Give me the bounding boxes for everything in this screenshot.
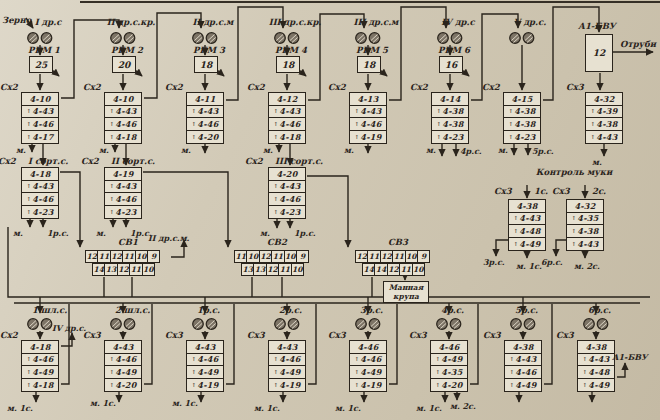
flow-line bbox=[61, 304, 69, 384]
output-label: 6р.с. bbox=[541, 258, 563, 266]
system-label: 3р.с. bbox=[360, 306, 410, 315]
sifter-box: 4-464-494-354-20 bbox=[430, 340, 468, 392]
system-label: II сорт.с. bbox=[111, 157, 155, 166]
system-label: 1 шл.с. bbox=[32, 306, 82, 315]
a1bvu-label: А1-БВУ bbox=[578, 22, 616, 31]
machine-label: РБМ 6 bbox=[434, 46, 474, 55]
output-label: м. 1с. bbox=[254, 404, 280, 412]
sifter-cell: 4-46 bbox=[269, 193, 305, 206]
sifter-cell: 4-46 bbox=[505, 366, 541, 379]
system-label: I сорт.с. bbox=[28, 157, 68, 166]
sifter-cell: 4-49 bbox=[105, 366, 141, 379]
output-label: м. 2с. bbox=[574, 262, 600, 270]
sifter-box: 4-384-434-484-49 bbox=[508, 199, 546, 251]
system-label: II др.с.м bbox=[183, 18, 243, 27]
sifter-cell: 4-15 bbox=[504, 93, 540, 106]
flow-line bbox=[52, 70, 59, 76]
purifier-cell: 9 bbox=[417, 250, 431, 263]
flow-line bbox=[380, 70, 387, 76]
system-label: II др.с.кр. bbox=[101, 18, 161, 27]
sifter-box: 4-384-434-464-49 bbox=[504, 340, 542, 392]
machine-box: 18 bbox=[357, 56, 381, 73]
rolls-icon bbox=[189, 30, 221, 44]
purifier-cell: 10 bbox=[412, 263, 426, 276]
system-label: III др.с.м bbox=[346, 18, 406, 27]
machine-box: 16 bbox=[439, 56, 463, 73]
output-label: м. bbox=[260, 229, 270, 237]
sifter-cell: 4-43 bbox=[350, 106, 386, 119]
flow-line bbox=[308, 304, 316, 384]
sifter-label: Сх3 bbox=[328, 331, 346, 340]
flow-line bbox=[556, 240, 566, 256]
sifter-cell: 4-49 bbox=[187, 366, 223, 379]
sifter-cell: 4-12 bbox=[269, 93, 305, 106]
system-note: А1-БВУ bbox=[612, 353, 648, 361]
flow-line bbox=[144, 304, 152, 384]
purifier-grid: 121112111091414121110 bbox=[356, 250, 430, 276]
sifter-cell: 4-49 bbox=[505, 379, 541, 392]
rolls-icon bbox=[507, 316, 539, 330]
system-label: 6р.с. bbox=[588, 306, 638, 315]
output-label: 3р.с. bbox=[483, 258, 505, 266]
machine-label: РБМ 1 bbox=[24, 46, 64, 55]
sifter-cell: 4-49 bbox=[431, 354, 467, 367]
sifter-cell: 4-46 bbox=[187, 354, 223, 367]
purifier-cell: 10 bbox=[142, 263, 156, 276]
machine-label: РБМ 5 bbox=[352, 46, 392, 55]
sifter-box: 4-384-434-484-49 bbox=[577, 340, 615, 392]
sifter-cell: 4-18 bbox=[22, 379, 58, 392]
sifter-box: 4-134-434-464-19 bbox=[349, 92, 387, 144]
system-label: 5р.с. bbox=[515, 306, 565, 315]
sifter-box: 4-464-464-494-19 bbox=[349, 340, 387, 392]
sifter-cell: 4-19 bbox=[350, 131, 386, 144]
rolls-icon bbox=[352, 316, 384, 330]
sifter-label: Сх3 bbox=[494, 187, 512, 196]
grain-label: Зерно bbox=[2, 16, 31, 25]
sifter-cell: 4-38 bbox=[509, 200, 545, 213]
purifier-cell: 9 bbox=[296, 250, 310, 263]
sifter-cell: 4-49 bbox=[269, 366, 305, 379]
sifter-box: 4-184-434-464-23 bbox=[21, 167, 59, 219]
flow-line bbox=[217, 70, 224, 76]
scan-border-top bbox=[80, 1, 660, 3]
rolls-icon bbox=[271, 30, 303, 44]
sifter-cell: 4-23 bbox=[504, 131, 540, 144]
sifter-cell: 4-38 bbox=[432, 106, 468, 119]
sifter-cell: 4-20 bbox=[269, 168, 305, 181]
sifter-cell: 4-43 bbox=[105, 181, 141, 194]
sifter-box: 4-434-464-494-19 bbox=[186, 340, 224, 392]
sifter-label: Сх3 bbox=[409, 331, 427, 340]
sifter-cell: 4-38 bbox=[586, 118, 622, 131]
purifier-row: 12111211109 bbox=[356, 250, 430, 263]
sifter-box: 4-434-464-494-19 bbox=[268, 340, 306, 392]
sifter-cell: 4-11 bbox=[187, 93, 223, 106]
sifter-cell: 4-18 bbox=[22, 168, 58, 181]
sifter-cell: 4-46 bbox=[431, 341, 467, 354]
sifter-cell: 4-23 bbox=[105, 206, 141, 219]
sifter-cell: 4-19 bbox=[187, 379, 223, 392]
output-label: м. 1с. bbox=[90, 399, 116, 407]
output-label: 4р.с. bbox=[460, 147, 482, 155]
machine-label: РБМ 3 bbox=[189, 46, 229, 55]
sifter-label: Сх3 bbox=[556, 331, 574, 340]
sifter-box: 4-104-434-464-18 bbox=[104, 92, 142, 144]
purifier-row: 1313121110 bbox=[242, 263, 309, 276]
rolls-icon bbox=[352, 30, 384, 44]
sifter-cell: 4-38 bbox=[504, 118, 540, 131]
output-label: м. bbox=[426, 146, 436, 154]
sifter-cell: 4-32 bbox=[567, 200, 603, 213]
semolina-line: крупа bbox=[393, 292, 419, 301]
sifter-cell: 4-23 bbox=[22, 206, 58, 219]
purifier-row: 1413121110 bbox=[93, 263, 160, 276]
sifter-cell: 4-19 bbox=[350, 379, 386, 392]
sifter-cell: 4-46 bbox=[350, 354, 386, 367]
sifter-cell: 4-48 bbox=[509, 225, 545, 238]
sifter-cell: 4-38 bbox=[505, 341, 541, 354]
machine-label: РБМ 2 bbox=[107, 46, 147, 55]
purifier-cell: 9 bbox=[147, 250, 161, 263]
system-label: 2р.с. bbox=[279, 306, 329, 315]
flow-line bbox=[61, 333, 72, 346]
sifter-cell: 4-43 bbox=[22, 106, 58, 119]
flow-line bbox=[617, 363, 625, 377]
flow-lines bbox=[0, 0, 660, 420]
output-label: м. bbox=[344, 146, 354, 154]
system-label: III др.с.кр. bbox=[265, 18, 325, 27]
sifter-label: Сх3 bbox=[83, 331, 101, 340]
sifter-cell: 4-46 bbox=[350, 118, 386, 131]
sifter-cell: 4-17 bbox=[22, 131, 58, 144]
machine-box: 18 bbox=[276, 56, 300, 73]
output-label: м. bbox=[592, 158, 602, 166]
flow-line bbox=[299, 70, 306, 76]
system-label: 2 шл.с. bbox=[115, 306, 165, 315]
sifter-cell: 4-49 bbox=[509, 238, 545, 251]
system-note: IV др.с. bbox=[52, 324, 86, 332]
sifter-cell: 4-43 bbox=[505, 354, 541, 367]
sifter-cell: 4-38 bbox=[432, 118, 468, 131]
sifter-cell: 4-46 bbox=[22, 193, 58, 206]
sifter-box: 4-184-464-494-18 bbox=[21, 340, 59, 392]
output-label: м. 2с. bbox=[450, 402, 476, 410]
sifter-label: Сх3 bbox=[165, 331, 183, 340]
sifter-box: 4-104-434-464-17 bbox=[21, 92, 59, 144]
system-label: V др.с. bbox=[500, 18, 560, 27]
sifter-cell: 4-10 bbox=[105, 93, 141, 106]
flow-line bbox=[496, 240, 508, 256]
sifter-cell: 4-38 bbox=[578, 341, 614, 354]
sifter-label: Сх3 bbox=[566, 83, 584, 92]
purifier-note: II др.с.м. bbox=[148, 234, 189, 242]
sifter-cell: 4-43 bbox=[269, 341, 305, 354]
flow-line bbox=[470, 304, 478, 384]
grade-label: 2с. bbox=[592, 187, 606, 196]
sifter-cell: 4-38 bbox=[567, 225, 603, 238]
purifier-grid: 111012111091313121110 bbox=[235, 250, 309, 276]
purifier-cell: 10 bbox=[291, 263, 305, 276]
sifter-label: Сх2 bbox=[245, 157, 263, 166]
flow-line bbox=[544, 304, 552, 384]
sifter-label: Сх2 bbox=[328, 83, 346, 92]
sifter-cell: 4-46 bbox=[105, 193, 141, 206]
sifter-cell: 4-18 bbox=[22, 341, 58, 354]
sifter-cell: 4-20 bbox=[187, 131, 223, 144]
system-label: IV др.с bbox=[428, 18, 488, 27]
sifter-cell: 4-32 bbox=[586, 93, 622, 106]
rolls-icon bbox=[107, 30, 139, 44]
sifter-label: Сх2 bbox=[247, 83, 265, 92]
output-label: м. 1с. bbox=[516, 262, 542, 270]
bran-label: Отруби bbox=[620, 40, 656, 49]
sifter-cell: 4-23 bbox=[269, 206, 305, 219]
output-label: м. bbox=[498, 146, 508, 154]
flow-line bbox=[226, 304, 234, 384]
sifter-cell: 4-38 bbox=[504, 106, 540, 119]
output-label: м. bbox=[99, 146, 109, 154]
system-label: 4р.с. bbox=[441, 306, 491, 315]
output-label: м. bbox=[181, 146, 191, 154]
flow-line bbox=[389, 304, 397, 384]
sifter-label: Сх2 bbox=[81, 157, 99, 166]
sifter-label: Сх2 bbox=[0, 157, 16, 166]
purifier-label: СВ1 bbox=[118, 238, 138, 247]
sifter-label: Сх3 bbox=[483, 331, 501, 340]
purifier-row: 12111211109 bbox=[86, 250, 160, 263]
output-label: м. 1с. bbox=[335, 404, 361, 412]
purifier-grid: 121112111091413121110 bbox=[86, 250, 160, 276]
sifter-cell: 4-43 bbox=[269, 106, 305, 119]
rolls-icon bbox=[433, 316, 465, 330]
semolina-line: Манная bbox=[389, 283, 424, 292]
sifter-cell: 4-46 bbox=[105, 354, 141, 367]
machine-box: 18 bbox=[194, 56, 218, 73]
sifter-box: 4-124-434-464-18 bbox=[268, 92, 306, 144]
sifter-cell: 4-46 bbox=[350, 341, 386, 354]
sifter-cell: 4-43 bbox=[269, 181, 305, 194]
system-label: III сорт.с. bbox=[275, 157, 323, 166]
sifter-cell: 4-19 bbox=[269, 379, 305, 392]
sifter-cell: 4-39 bbox=[586, 106, 622, 119]
sifter-cell: 4-46 bbox=[269, 354, 305, 367]
sifter-cell: 4-43 bbox=[187, 106, 223, 119]
sifter-label: Сх2 bbox=[83, 83, 101, 92]
a1bvu-box: 12 bbox=[585, 34, 613, 72]
sifter-label: Сх2 bbox=[165, 83, 183, 92]
sifter-box: 4-154-384-384-23 bbox=[503, 92, 541, 144]
sifter-label: Сх2 bbox=[0, 331, 18, 340]
sifter-cell: 4-18 bbox=[105, 131, 141, 144]
sifter-box: 4-144-384-384-23 bbox=[431, 92, 469, 144]
sifter-cell: 4-49 bbox=[578, 379, 614, 392]
machine-label: РБМ 4 bbox=[271, 46, 311, 55]
purifier-row: 1414121110 bbox=[363, 263, 430, 276]
sifter-cell: 4-49 bbox=[350, 366, 386, 379]
sifter-cell: 4-46 bbox=[269, 118, 305, 131]
sifter-cell: 4-43 bbox=[105, 341, 141, 354]
sifter-cell: 4-20 bbox=[105, 379, 141, 392]
sifter-cell: 4-35 bbox=[431, 366, 467, 379]
sifter-cell: 4-13 bbox=[350, 93, 386, 106]
sifter-cell: 4-43 bbox=[578, 354, 614, 367]
output-label: 1р.с. bbox=[294, 229, 316, 237]
rolls-icon bbox=[107, 316, 139, 330]
sifter-cell: 4-10 bbox=[22, 93, 58, 106]
sifter-cell: 4-43 bbox=[567, 238, 603, 251]
sifter-cell: 4-49 bbox=[22, 366, 58, 379]
output-label: 5р.с. bbox=[532, 147, 554, 155]
sifter-box: 4-204-434-464-23 bbox=[268, 167, 306, 219]
sifter-cell: 4-23 bbox=[432, 131, 468, 144]
purifier-label: СВ3 bbox=[388, 238, 408, 247]
sifter-cell: 4-46 bbox=[22, 354, 58, 367]
output-label: м. 1с. bbox=[7, 404, 33, 412]
rolls-icon bbox=[271, 316, 303, 330]
milling-flow-diagram: I др.сРБМ 125Сх24-104-434-464-17м.II др.… bbox=[0, 0, 660, 420]
sifter-cell: 4-46 bbox=[105, 118, 141, 131]
sifter-box: 4-324-394-384-43 bbox=[585, 92, 623, 144]
output-label: м. 1с. bbox=[172, 399, 198, 407]
sifter-cell: 4-14 bbox=[432, 93, 468, 106]
sifter-label: Сх2 bbox=[0, 83, 18, 92]
sifter-cell: 4-43 bbox=[22, 181, 58, 194]
sifter-box: 4-114-434-464-20 bbox=[186, 92, 224, 144]
grade-label: 1с. bbox=[534, 187, 548, 196]
sifter-cell: 4-46 bbox=[22, 118, 58, 131]
flow-line bbox=[462, 70, 469, 76]
purifier-row: 11101211109 bbox=[235, 250, 309, 263]
sifter-box: 4-194-434-464-23 bbox=[104, 167, 142, 219]
sifter-cell: 4-48 bbox=[578, 366, 614, 379]
sifter-cell: 4-35 bbox=[567, 213, 603, 226]
flour-control-title: Контроль муки bbox=[524, 168, 624, 177]
rolls-icon bbox=[24, 30, 56, 44]
rolls-icon bbox=[434, 30, 466, 44]
sifter-cell: 4-19 bbox=[105, 168, 141, 181]
output-label: 1р.с. bbox=[47, 229, 69, 237]
purifier-label: СВ2 bbox=[267, 238, 287, 247]
output-label: м. bbox=[96, 229, 106, 237]
system-label: 1р.с. bbox=[197, 306, 247, 315]
sifter-cell: 4-43 bbox=[509, 213, 545, 226]
rolls-icon bbox=[506, 30, 538, 44]
sifter-cell: 4-43 bbox=[105, 106, 141, 119]
flow-line bbox=[135, 70, 142, 76]
sifter-label: Сх2 bbox=[482, 83, 500, 92]
sifter-box: 4-324-354-384-43 bbox=[566, 199, 604, 251]
sifter-cell: 4-43 bbox=[586, 131, 622, 144]
sifter-label: Сх3 bbox=[552, 187, 570, 196]
sifter-cell: 4-20 bbox=[431, 379, 467, 392]
sifter-box: 4-434-464-494-20 bbox=[104, 340, 142, 392]
output-label: м. 1с. bbox=[416, 404, 442, 412]
sifter-cell: 4-43 bbox=[187, 341, 223, 354]
sifter-label: Сх3 bbox=[247, 331, 265, 340]
machine-box: 25 bbox=[29, 56, 53, 73]
output-label: м. bbox=[263, 146, 273, 154]
rolls-icon bbox=[189, 316, 221, 330]
semolina-box: Маннаякрупа bbox=[383, 281, 429, 303]
output-label: м. bbox=[16, 146, 26, 154]
sifter-label: Сх2 bbox=[410, 83, 428, 92]
machine-box: 20 bbox=[112, 56, 136, 73]
rolls-icon bbox=[580, 316, 612, 330]
sifter-cell: 4-46 bbox=[187, 118, 223, 131]
sifter-cell: 4-18 bbox=[269, 131, 305, 144]
output-label: м. bbox=[13, 229, 23, 237]
